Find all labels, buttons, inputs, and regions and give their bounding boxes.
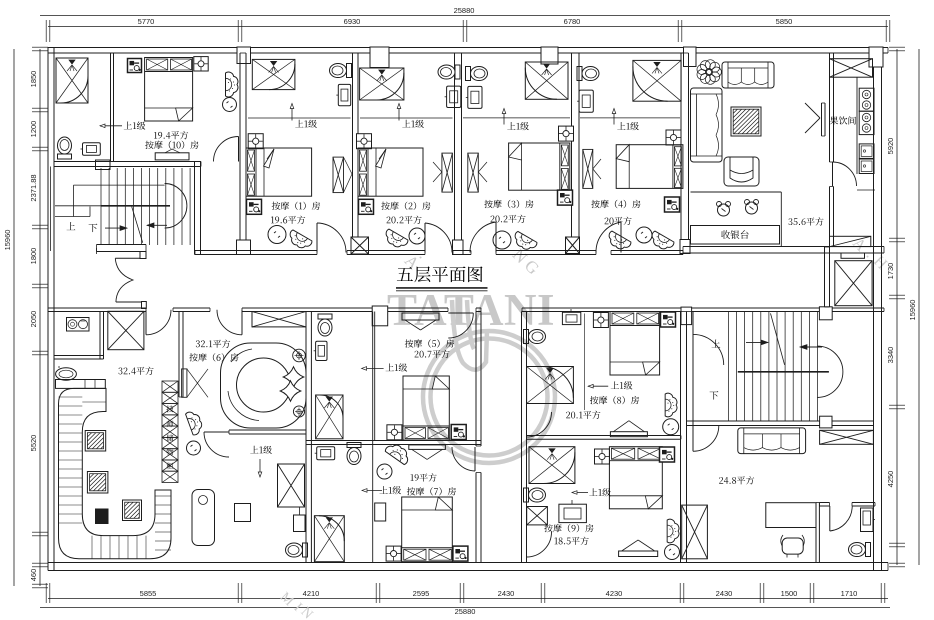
svg-text:1730: 1730	[886, 263, 895, 280]
svg-text:4210: 4210	[303, 589, 320, 598]
svg-text:4230: 4230	[606, 589, 623, 598]
svg-text:6780: 6780	[564, 17, 581, 26]
svg-text:15960: 15960	[3, 230, 12, 251]
svg-text:5855: 5855	[140, 589, 157, 598]
svg-text:1800: 1800	[29, 248, 38, 265]
svg-text:5770: 5770	[138, 17, 155, 26]
svg-text:25880: 25880	[455, 607, 476, 616]
svg-text:3340: 3340	[886, 347, 895, 364]
svg-text:15960: 15960	[908, 300, 917, 321]
svg-text:2371.88: 2371.88	[29, 174, 38, 201]
svg-text:1850: 1850	[29, 71, 38, 88]
svg-text:6930: 6930	[344, 17, 361, 26]
svg-text:2050: 2050	[29, 311, 38, 328]
svg-text:1710: 1710	[841, 589, 858, 598]
svg-text:1500: 1500	[781, 589, 798, 598]
svg-text:1200: 1200	[29, 121, 38, 138]
svg-text:5850: 5850	[776, 17, 793, 26]
svg-text:5520: 5520	[29, 435, 38, 452]
svg-text:5920: 5920	[886, 138, 895, 155]
svg-text:2430: 2430	[716, 589, 733, 598]
svg-text:2595: 2595	[413, 589, 430, 598]
svg-text:25880: 25880	[454, 6, 475, 15]
svg-text:4250: 4250	[886, 471, 895, 488]
svg-text:460: 460	[29, 569, 38, 582]
svg-text:2430: 2430	[498, 589, 515, 598]
